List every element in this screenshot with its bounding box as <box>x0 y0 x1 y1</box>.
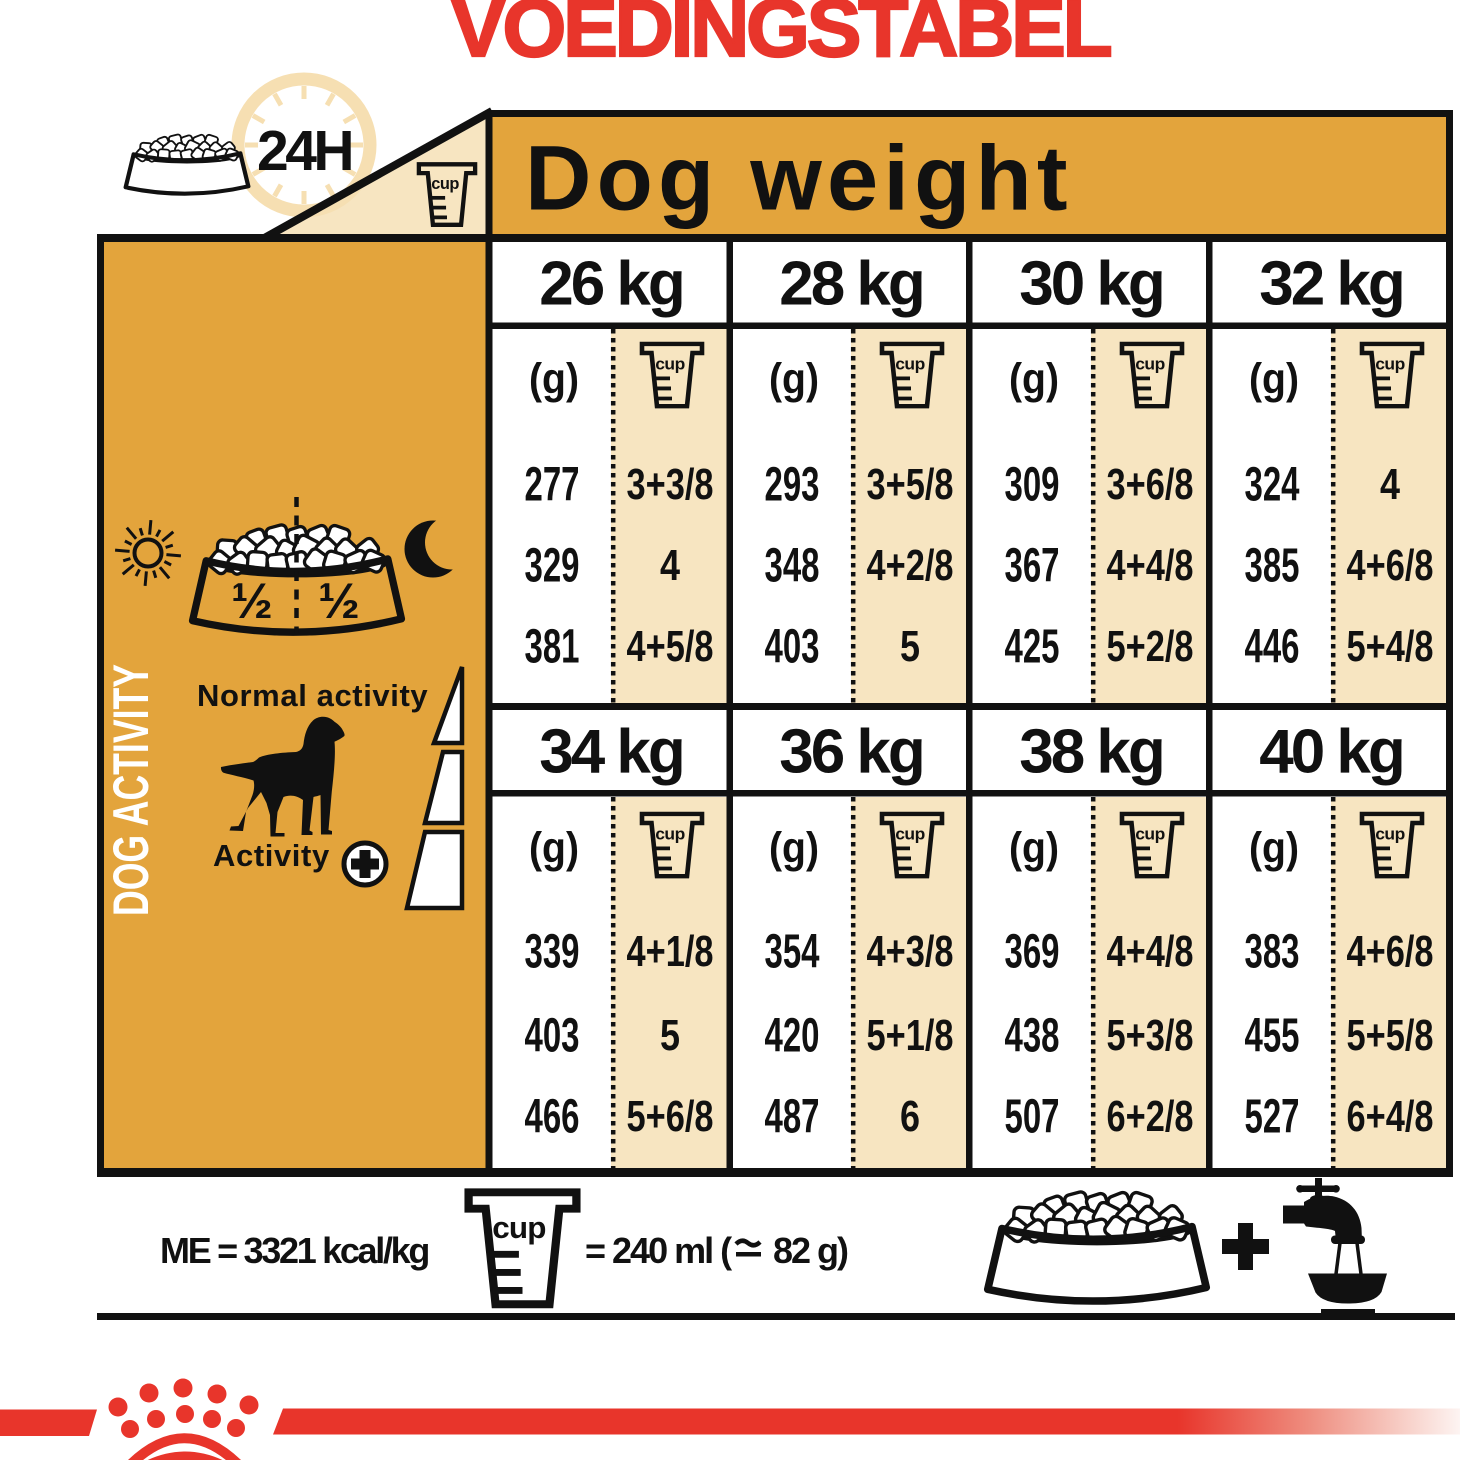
svg-text:4+6/8: 4+6/8 <box>1347 541 1434 590</box>
svg-text:403: 403 <box>525 1010 580 1063</box>
svg-text:24H: 24H <box>257 119 351 183</box>
svg-text:30 kg: 30 kg <box>1019 250 1163 319</box>
svg-text:425: 425 <box>1005 621 1060 674</box>
svg-text:cup: cup <box>895 354 925 374</box>
svg-text:4: 4 <box>1380 460 1400 509</box>
svg-text:367: 367 <box>1005 540 1060 593</box>
svg-text:5+6/8: 5+6/8 <box>627 1092 714 1141</box>
svg-text:487: 487 <box>765 1091 820 1144</box>
svg-text:½: ½ <box>318 573 360 629</box>
svg-text:(g): (g) <box>1009 824 1059 873</box>
svg-text:5+4/8: 5+4/8 <box>1347 622 1434 671</box>
svg-text:cup: cup <box>1135 354 1165 374</box>
svg-text:3+5/8: 3+5/8 <box>867 460 954 509</box>
svg-text:420: 420 <box>765 1010 820 1063</box>
svg-text:348: 348 <box>765 540 820 593</box>
svg-text:½: ½ <box>231 573 273 629</box>
svg-text:cup: cup <box>1135 824 1165 844</box>
svg-text:4+6/8: 4+6/8 <box>1347 927 1434 976</box>
svg-text:438: 438 <box>1005 1010 1060 1063</box>
svg-text:5+5/8: 5+5/8 <box>1347 1011 1434 1060</box>
svg-text:26 kg: 26 kg <box>539 250 683 319</box>
svg-text:446: 446 <box>1245 621 1300 674</box>
svg-text:3+3/8: 3+3/8 <box>627 460 714 509</box>
svg-text:cup: cup <box>492 1211 545 1245</box>
svg-text:(g): (g) <box>1009 355 1059 404</box>
svg-text:cup: cup <box>1375 354 1405 374</box>
svg-text:(g): (g) <box>769 355 819 404</box>
svg-text:466: 466 <box>525 1091 580 1144</box>
svg-text:4+3/8: 4+3/8 <box>867 927 954 976</box>
svg-text:38 kg: 38 kg <box>1019 718 1163 787</box>
svg-text:(g): (g) <box>1249 824 1299 873</box>
svg-text:(g): (g) <box>529 355 579 404</box>
svg-text:455: 455 <box>1245 1010 1300 1063</box>
svg-text:cup: cup <box>1375 824 1405 844</box>
svg-text:4+5/8: 4+5/8 <box>627 622 714 671</box>
svg-text:cup: cup <box>655 354 685 374</box>
svg-text:385: 385 <box>1245 540 1300 593</box>
svg-text:329: 329 <box>525 540 580 593</box>
svg-text:3+6/8: 3+6/8 <box>1107 460 1194 509</box>
svg-text:DOG ACTIVITY: DOG ACTIVITY <box>103 664 159 916</box>
svg-text:40 kg: 40 kg <box>1259 718 1403 787</box>
svg-text:= 240 ml (: = 240 ml ( <box>585 1230 732 1271</box>
svg-text:4+1/8: 4+1/8 <box>627 927 714 976</box>
svg-text:(g): (g) <box>769 824 819 873</box>
svg-text:cup: cup <box>895 824 925 844</box>
svg-text:5+2/8: 5+2/8 <box>1107 622 1194 671</box>
svg-text:5: 5 <box>660 1011 680 1060</box>
svg-text:6+4/8: 6+4/8 <box>1347 1092 1434 1141</box>
svg-text:28 kg: 28 kg <box>779 250 923 319</box>
svg-text:VOEDINGSTABEL: VOEDINGSTABEL <box>451 0 1111 74</box>
svg-text:cup: cup <box>431 175 459 193</box>
svg-text:82 g): 82 g) <box>773 1230 848 1271</box>
svg-text:4: 4 <box>660 541 680 590</box>
svg-text:(g): (g) <box>529 824 579 873</box>
svg-text:36 kg: 36 kg <box>779 718 923 787</box>
svg-text:ME = 3321 kcal/kg: ME = 3321 kcal/kg <box>160 1230 428 1271</box>
svg-text:5: 5 <box>900 622 920 671</box>
svg-text:403: 403 <box>765 621 820 674</box>
svg-text:277: 277 <box>525 459 580 512</box>
svg-text:324: 324 <box>1245 459 1300 512</box>
svg-text:507: 507 <box>1005 1091 1060 1144</box>
svg-text:293: 293 <box>765 459 820 512</box>
svg-text:34 kg: 34 kg <box>539 718 683 787</box>
svg-text:381: 381 <box>525 621 580 674</box>
svg-text:527: 527 <box>1245 1091 1300 1144</box>
svg-text:4+4/8: 4+4/8 <box>1107 927 1194 976</box>
svg-text:4+2/8: 4+2/8 <box>867 541 954 590</box>
svg-text:Activity: Activity <box>213 838 330 873</box>
svg-text:369: 369 <box>1005 926 1060 979</box>
svg-text:309: 309 <box>1005 459 1060 512</box>
svg-text:5+1/8: 5+1/8 <box>867 1011 954 1060</box>
svg-text:Normal activity: Normal activity <box>197 678 428 713</box>
svg-text:Dog weight: Dog weight <box>525 128 1073 230</box>
svg-text:5+3/8: 5+3/8 <box>1107 1011 1194 1060</box>
svg-text:32 kg: 32 kg <box>1259 250 1403 319</box>
svg-text:6: 6 <box>900 1092 920 1141</box>
svg-text:4+4/8: 4+4/8 <box>1107 541 1194 590</box>
svg-text:(g): (g) <box>1249 355 1299 404</box>
svg-text:cup: cup <box>655 824 685 844</box>
svg-text:354: 354 <box>765 926 820 979</box>
svg-text:339: 339 <box>525 926 580 979</box>
svg-text:6+2/8: 6+2/8 <box>1107 1092 1194 1141</box>
svg-text:383: 383 <box>1245 926 1300 979</box>
